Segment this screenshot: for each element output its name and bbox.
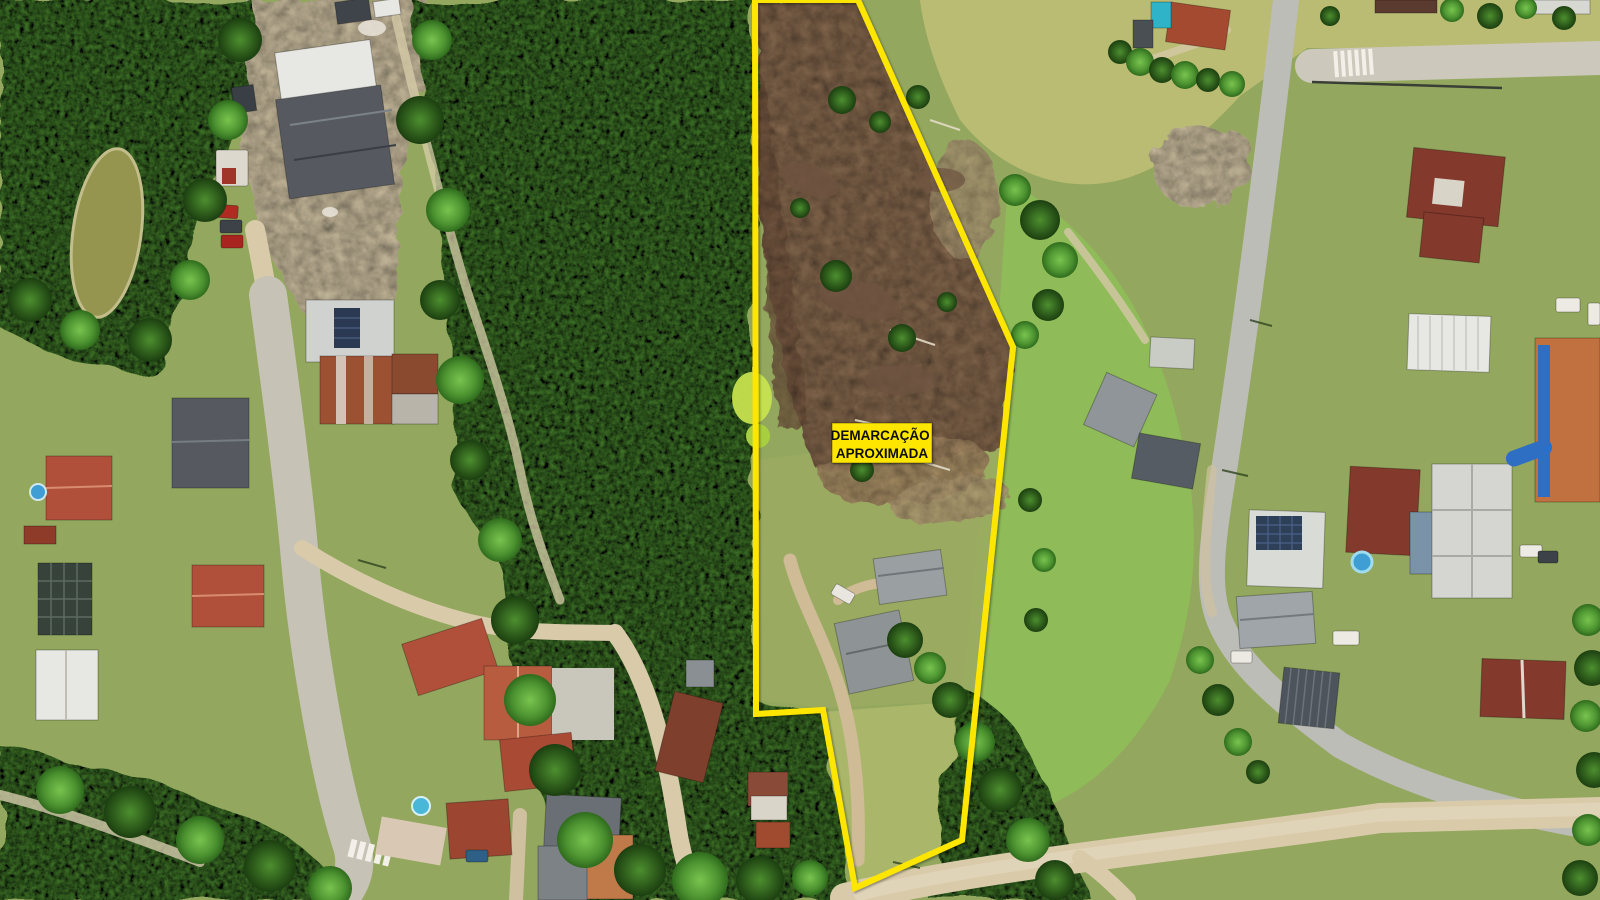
patio-concrete — [552, 668, 614, 740]
alley-south — [516, 815, 520, 900]
label-line-1: DEMARCAÇÃO — [831, 428, 930, 443]
dark-shed-top — [1133, 20, 1153, 48]
car-dark — [220, 220, 242, 233]
maroon-double-house — [1480, 659, 1566, 720]
car-dark-r — [1538, 551, 1558, 563]
parcel-shed-1 — [873, 549, 947, 604]
cyan-shed — [1151, 2, 1171, 28]
small-red-shed — [24, 526, 56, 544]
tile-roof-top-right-of-parcel — [1166, 2, 1231, 50]
car-blue — [466, 850, 488, 862]
lime-green-patch — [732, 372, 772, 424]
car-white-r1 — [1333, 631, 1359, 645]
blue-canopy — [1538, 345, 1550, 497]
rust-shed — [392, 354, 438, 394]
car-red-2 — [221, 235, 243, 248]
small-gray-shed — [686, 660, 714, 687]
warehouse-gray-roof — [276, 85, 395, 199]
round-pool-left — [30, 484, 46, 500]
solar-house — [1247, 510, 1326, 589]
label-line-2: APROXIMADA — [836, 446, 929, 461]
dark-roof-house — [172, 398, 249, 488]
solar-panel-grid — [1256, 516, 1302, 550]
field-shed-white — [1149, 337, 1195, 369]
rust-shed-garage — [392, 394, 438, 424]
truck-cab — [222, 168, 236, 184]
industrial-white-building — [1432, 464, 1512, 598]
top-edge-roof-1 — [1375, 0, 1437, 13]
pool-round — [1352, 552, 1372, 572]
round-pool-bottom — [412, 797, 430, 815]
rusty-striped-warehouse — [320, 356, 394, 424]
shade-structure — [38, 563, 92, 635]
van-white — [1556, 298, 1580, 312]
yard-shed-dark — [335, 0, 372, 24]
car-white-r2 — [1231, 651, 1252, 663]
aerial-photo: DEMARCAÇÃO APROXIMADA — [0, 0, 1600, 900]
corrugated-shed-right — [1278, 667, 1340, 729]
